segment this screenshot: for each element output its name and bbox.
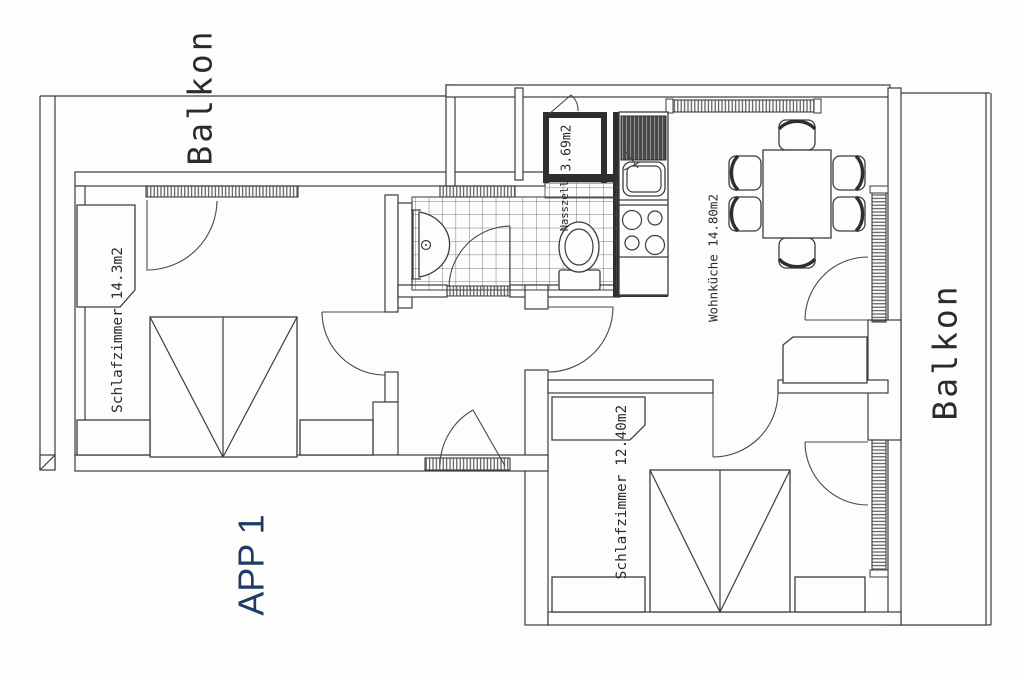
bathroom-window [440,186,515,197]
nightstand-2-right [795,577,865,612]
bedroom1-window [146,186,298,197]
chair-right-1 [833,156,865,190]
label-apartment-title: APP 1 [231,514,272,615]
livingroom-door [548,307,613,372]
chair-left-1 [729,156,761,190]
bedroom2-balcony-window [870,440,888,577]
bathroom-door-band [447,286,510,296]
floor-plan-drawing: Balkon Balkon Schlafzimmer 14.3m2 Schlaf… [0,0,1024,675]
label-balcony-top: Balkon [181,28,220,165]
label-balcony-right: Balkon [926,283,965,420]
floor-plan-page: Balkon Balkon Schlafzimmer 14.3m2 Schlaf… [0,0,1024,675]
chair-bottom [779,238,815,268]
bed-2 [650,470,790,612]
nightstand-1-right [300,420,373,455]
bed-1 [150,317,297,457]
wardrobe-2 [552,397,645,440]
wardrobe-living [783,337,867,383]
label-bedroom2: Schlafzimmer 12.40m2 [614,405,630,580]
label-wet-room: Nasszell [559,181,571,232]
label-wet-room-area: 3.69m2 [560,125,575,172]
entry-door-band [425,458,510,470]
chair-left-2 [729,197,761,231]
bedroom1-door [322,312,385,375]
bedroom2-door [713,393,778,457]
livingroom-balcony-window [870,186,888,322]
chair-top [779,120,815,150]
sink-drainboard [621,116,666,160]
wet-cell-door [549,95,578,114]
chair-right-2 [833,197,865,231]
livingroom-balcony-door [805,257,868,320]
dining-table [763,150,831,238]
wardrobe-1 [77,205,135,307]
kitchen-counter [619,112,668,295]
nightstand-1-left [77,420,150,455]
nightstand-2-left [552,577,645,612]
label-living-kitchen: Wohnküche 14.80m2 [706,194,721,322]
dining-table-set [729,120,865,268]
label-bedroom1: Schlafzimmer 14.3m2 [110,247,126,413]
bedroom2-balcony-door [805,442,868,505]
bedroom1-balcony-door [147,200,217,271]
kitchen-window [666,99,821,113]
